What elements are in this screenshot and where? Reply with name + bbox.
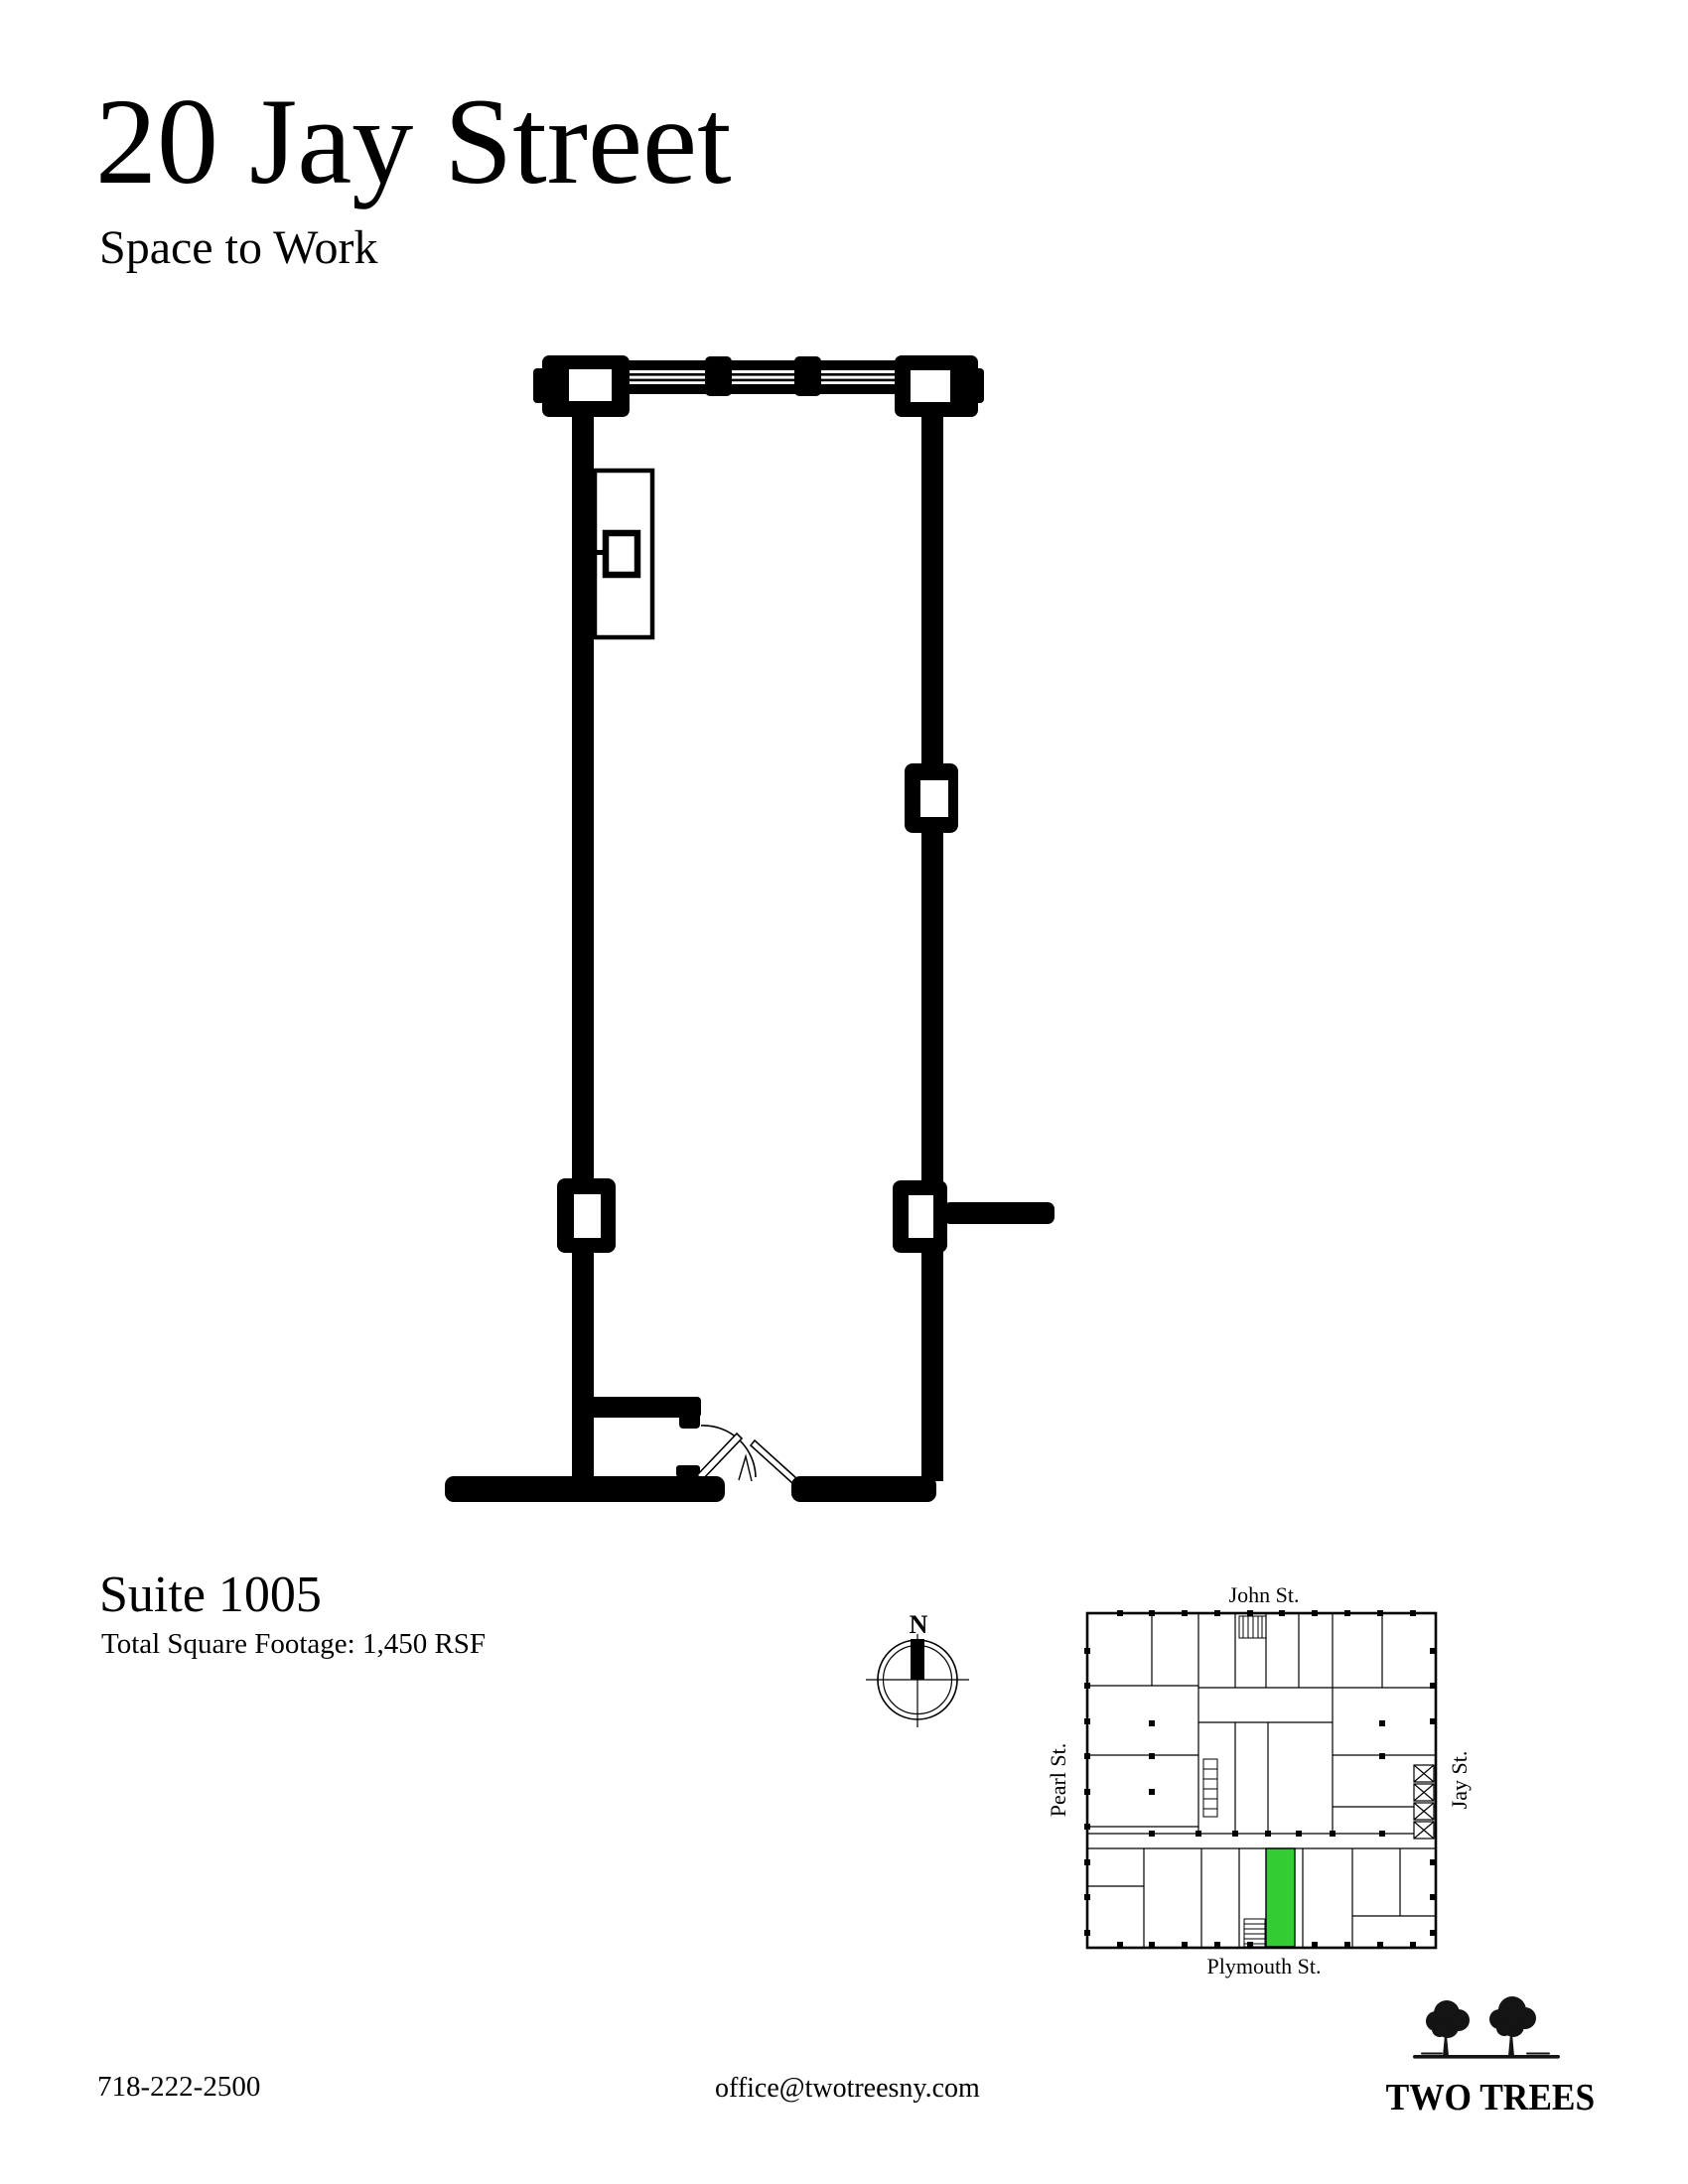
door-leaf	[697, 1433, 742, 1480]
page-title: 20 Jay Street	[95, 77, 732, 206]
electrical-panel-icon	[606, 533, 637, 575]
column-mid-east	[905, 763, 958, 833]
column-lower-west	[557, 1178, 616, 1253]
suite-name: Suite 1005	[99, 1569, 322, 1623]
page-subtitle: Space to Work	[99, 222, 378, 275]
suite-floor-plan	[437, 347, 1082, 1509]
window-mullion	[794, 356, 821, 396]
street-label-john: John St.	[1229, 1582, 1300, 1607]
stub-wall	[943, 1202, 1055, 1224]
window-wall	[626, 356, 902, 396]
street-label-plymouth: Plymouth St.	[1207, 1954, 1322, 1979]
flyer-page: 20 Jay Street Space to Work	[0, 0, 1688, 2184]
column-top-right	[895, 355, 984, 417]
column-top-left	[533, 355, 630, 417]
key-map: John St. Pearl St. Jay St. Plymouth St.	[1043, 1580, 1489, 1987]
two-trees-logo: TWO TREES	[1378, 1989, 1595, 2119]
south-wall-left	[445, 1476, 725, 1502]
tree-left	[1426, 2000, 1470, 2056]
street-label-jay: Jay St.	[1447, 1751, 1472, 1810]
compass-icon: N	[849, 1600, 993, 1739]
tree-right	[1489, 1996, 1536, 2056]
wall-closet	[591, 471, 652, 637]
compass-needle	[911, 1639, 924, 1680]
entry-partition	[589, 1397, 701, 1429]
west-wall	[572, 413, 594, 1481]
two-trees-logo-text: TWO TREES	[1386, 2076, 1588, 2119]
window-mullion	[705, 356, 732, 396]
east-wall	[921, 413, 943, 1481]
two-trees-icon	[1407, 1989, 1566, 2067]
column-lower-east	[893, 1180, 947, 1253]
floor-plan-walls	[445, 355, 1055, 1502]
highlighted-suite	[1266, 1848, 1295, 1947]
entry-doors	[676, 1426, 796, 1483]
building-outline	[1087, 1613, 1436, 1948]
street-label-pearl: Pearl St.	[1046, 1743, 1070, 1818]
south-wall-right	[791, 1476, 936, 1502]
door-leaf	[751, 1440, 796, 1483]
footer-email: office@twotreesny.com	[715, 2073, 980, 2105]
ground-line	[1413, 2053, 1560, 2059]
footer-phone: 718-222-2500	[97, 2071, 260, 2104]
compass-north-label: N	[910, 1610, 928, 1639]
suite-footage: Total Square Footage: 1,450 RSF	[101, 1628, 486, 1661]
